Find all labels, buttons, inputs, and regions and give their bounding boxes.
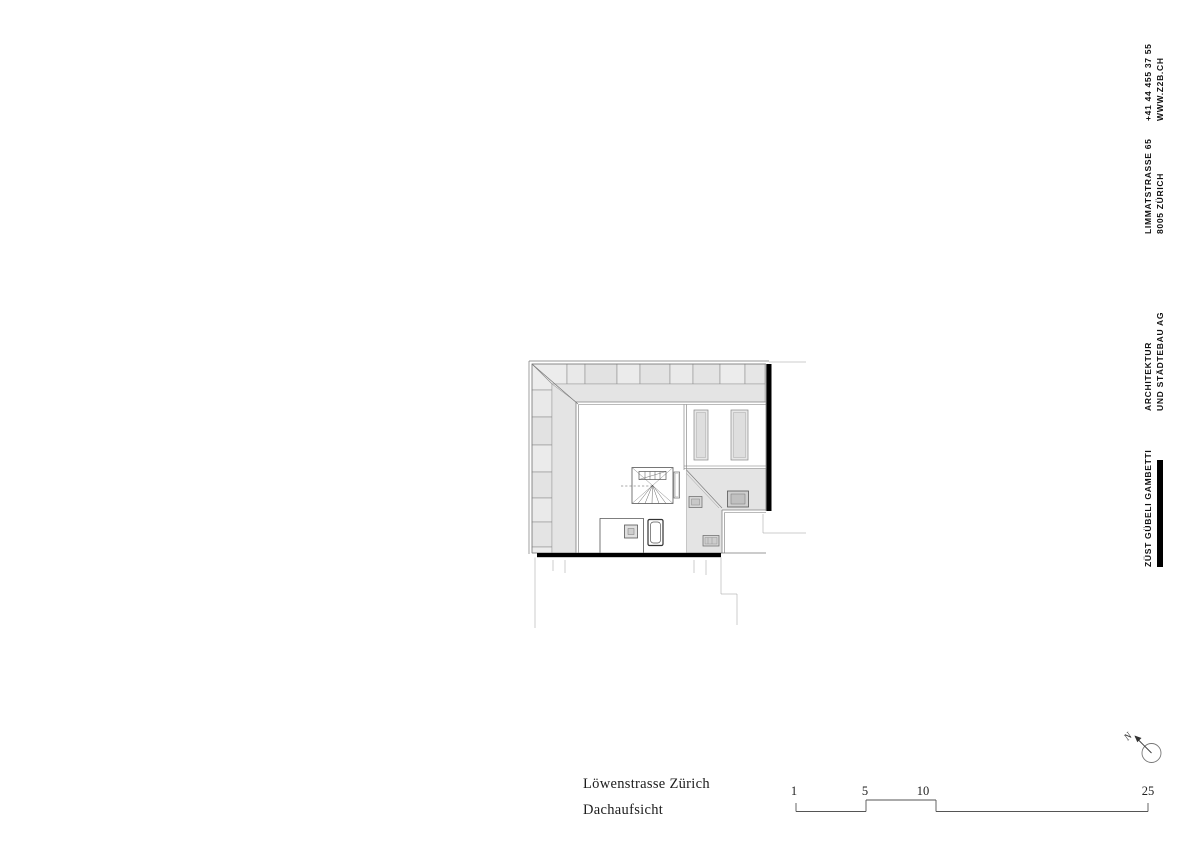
- scale-label-10: 10: [917, 784, 930, 799]
- firm-name: ZÜST GÜBELI GAMBETTI: [1143, 450, 1155, 567]
- scale-label-1: 1: [791, 784, 797, 799]
- firm-discipline-line1: ARCHITEKTUR: [1143, 312, 1155, 411]
- cut-bar-bottom: [537, 553, 721, 557]
- firm-city: 8005 ZÜRICH: [1155, 138, 1167, 234]
- north-label: N: [1121, 730, 1135, 744]
- scale-label-5: 5: [862, 784, 868, 799]
- roof-hatch: [648, 520, 663, 546]
- roof-plan-drawing: [520, 350, 820, 640]
- firm-phone: +41 44 455 37 55: [1143, 43, 1155, 121]
- cut-bar-right: [767, 364, 772, 511]
- firm-name-block: ZÜST GÜBELI GAMBETTI: [1143, 450, 1163, 567]
- roof-vent: [703, 536, 719, 547]
- chimney: [674, 472, 680, 498]
- dormer-small: [689, 497, 702, 508]
- drawing-sheet: Löwenstrasse Zürich Dachaufsicht 1 5 10 …: [0, 0, 1200, 848]
- dormer-large: [728, 491, 749, 507]
- roof-top-skylight-row: [532, 364, 765, 384]
- north-arrow-icon: N: [1115, 720, 1171, 776]
- scale-label-25: 25: [1142, 784, 1155, 799]
- brand-accent-bar: [1157, 460, 1163, 567]
- firm-discipline-block: ARCHITEKTUR UND STÄDTEBAU AG: [1143, 312, 1166, 411]
- roof-left-skylight-column: [532, 364, 552, 553]
- project-title: Löwenstrasse Zürich: [583, 776, 710, 793]
- firm-street: LIMMATSTRASSE 65: [1143, 138, 1155, 234]
- firm-address-block: LIMMATSTRASSE 65 8005 ZÜRICH: [1143, 138, 1166, 234]
- firm-website: WWW.Z2B.CH: [1155, 43, 1167, 121]
- lower-roof-section: [600, 519, 644, 554]
- firm-contact-block: +41 44 455 37 55 WWW.Z2B.CH: [1143, 43, 1166, 121]
- drawing-title: Dachaufsicht: [583, 802, 663, 819]
- firm-discipline-line2: UND STÄDTEBAU AG: [1155, 312, 1167, 411]
- scale-bar: [785, 780, 1165, 820]
- lower-right-roof: [687, 469, 767, 554]
